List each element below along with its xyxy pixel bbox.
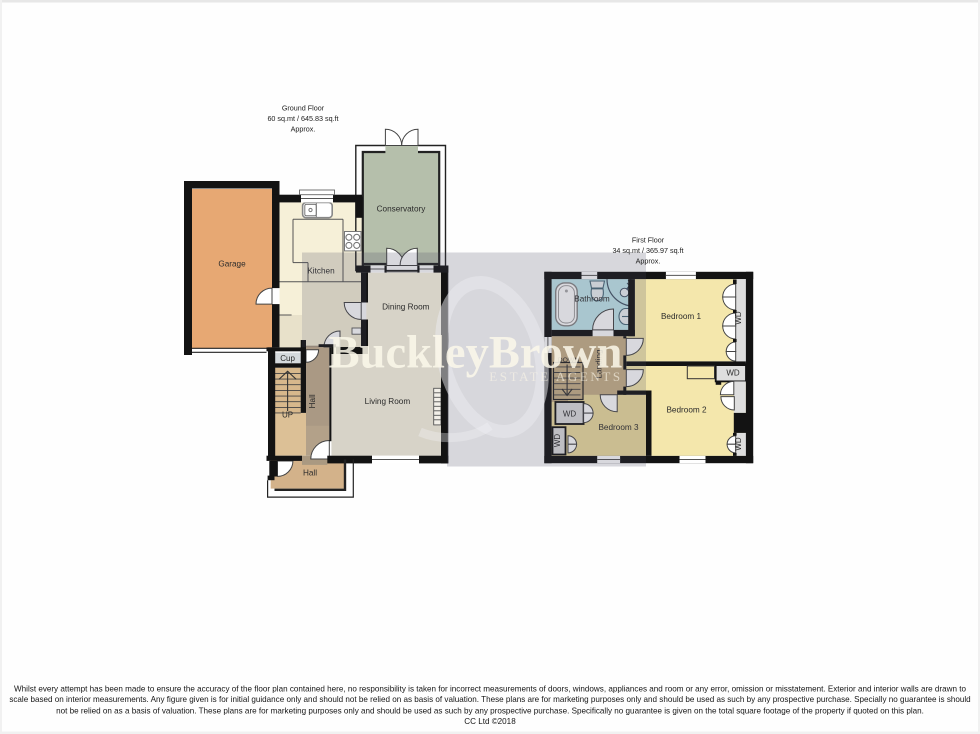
svg-text:First Floor: First Floor [632,236,665,245]
svg-text:WD: WD [734,311,743,325]
svg-text:34 sq.mt / 365.97 sq.ft: 34 sq.mt / 365.97 sq.ft [612,246,683,255]
svg-text:Whilst every attempt has been: Whilst every attempt has been made to en… [14,685,966,694]
svg-text:Ground Floor: Ground Floor [282,104,325,113]
svg-text:Bedroom 2: Bedroom 2 [666,406,706,415]
svg-text:WD: WD [726,369,740,378]
svg-text:not be relied on as a basis of: not be relied on as a basis of valuation… [56,707,924,716]
svg-text:scale based on interior measur: scale based on interior measurements. An… [9,695,970,704]
svg-text:CC Ltd ©2018: CC Ltd ©2018 [464,717,516,726]
svg-text:ESTATE AGENTS: ESTATE AGENTS [489,369,623,384]
svg-text:60 sq.mt / 645.83 sq.ft: 60 sq.mt / 645.83 sq.ft [267,114,338,123]
svg-text:Conservatory: Conservatory [377,205,427,214]
svg-text:Dining Room: Dining Room [382,302,430,311]
svg-text:Bedroom 1: Bedroom 1 [661,312,701,321]
svg-text:Cup: Cup [280,354,295,363]
svg-text:WD: WD [734,437,743,451]
svg-text:Approx.: Approx. [291,125,316,134]
svg-text:Garage: Garage [218,260,246,269]
svg-text:Approx.: Approx. [636,257,661,266]
svg-text:Hall: Hall [303,469,317,478]
svg-text:Hall: Hall [308,394,317,408]
svg-text:Living Room: Living Room [365,397,411,406]
svg-text:UP: UP [282,411,293,420]
